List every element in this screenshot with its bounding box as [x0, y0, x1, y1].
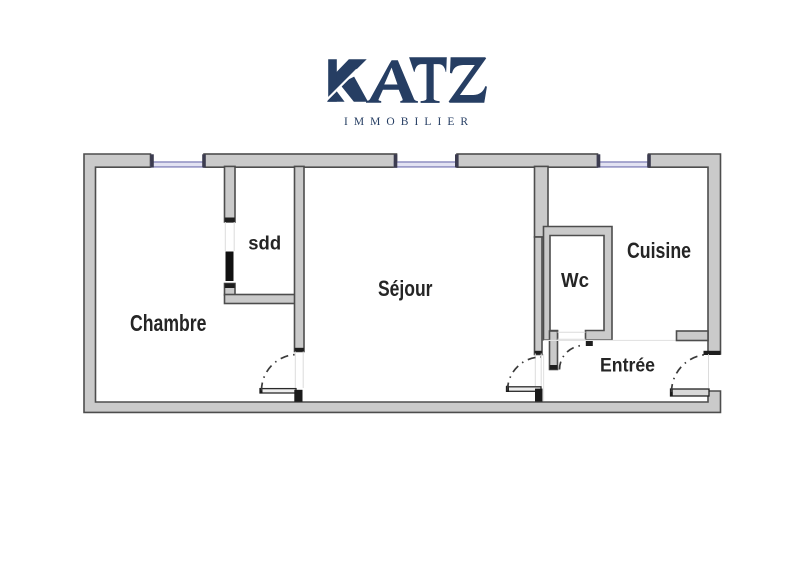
svg-text:IMMOBILIER: IMMOBILIER	[344, 116, 474, 128]
svg-text:Séjour: Séjour	[378, 276, 433, 301]
svg-text:Entrée: Entrée	[600, 355, 655, 376]
svg-text:Chambre: Chambre	[130, 310, 207, 336]
svg-text:sdd: sdd	[248, 234, 281, 255]
svg-text:Wc: Wc	[561, 269, 589, 292]
svg-text:Cuisine: Cuisine	[627, 238, 691, 263]
